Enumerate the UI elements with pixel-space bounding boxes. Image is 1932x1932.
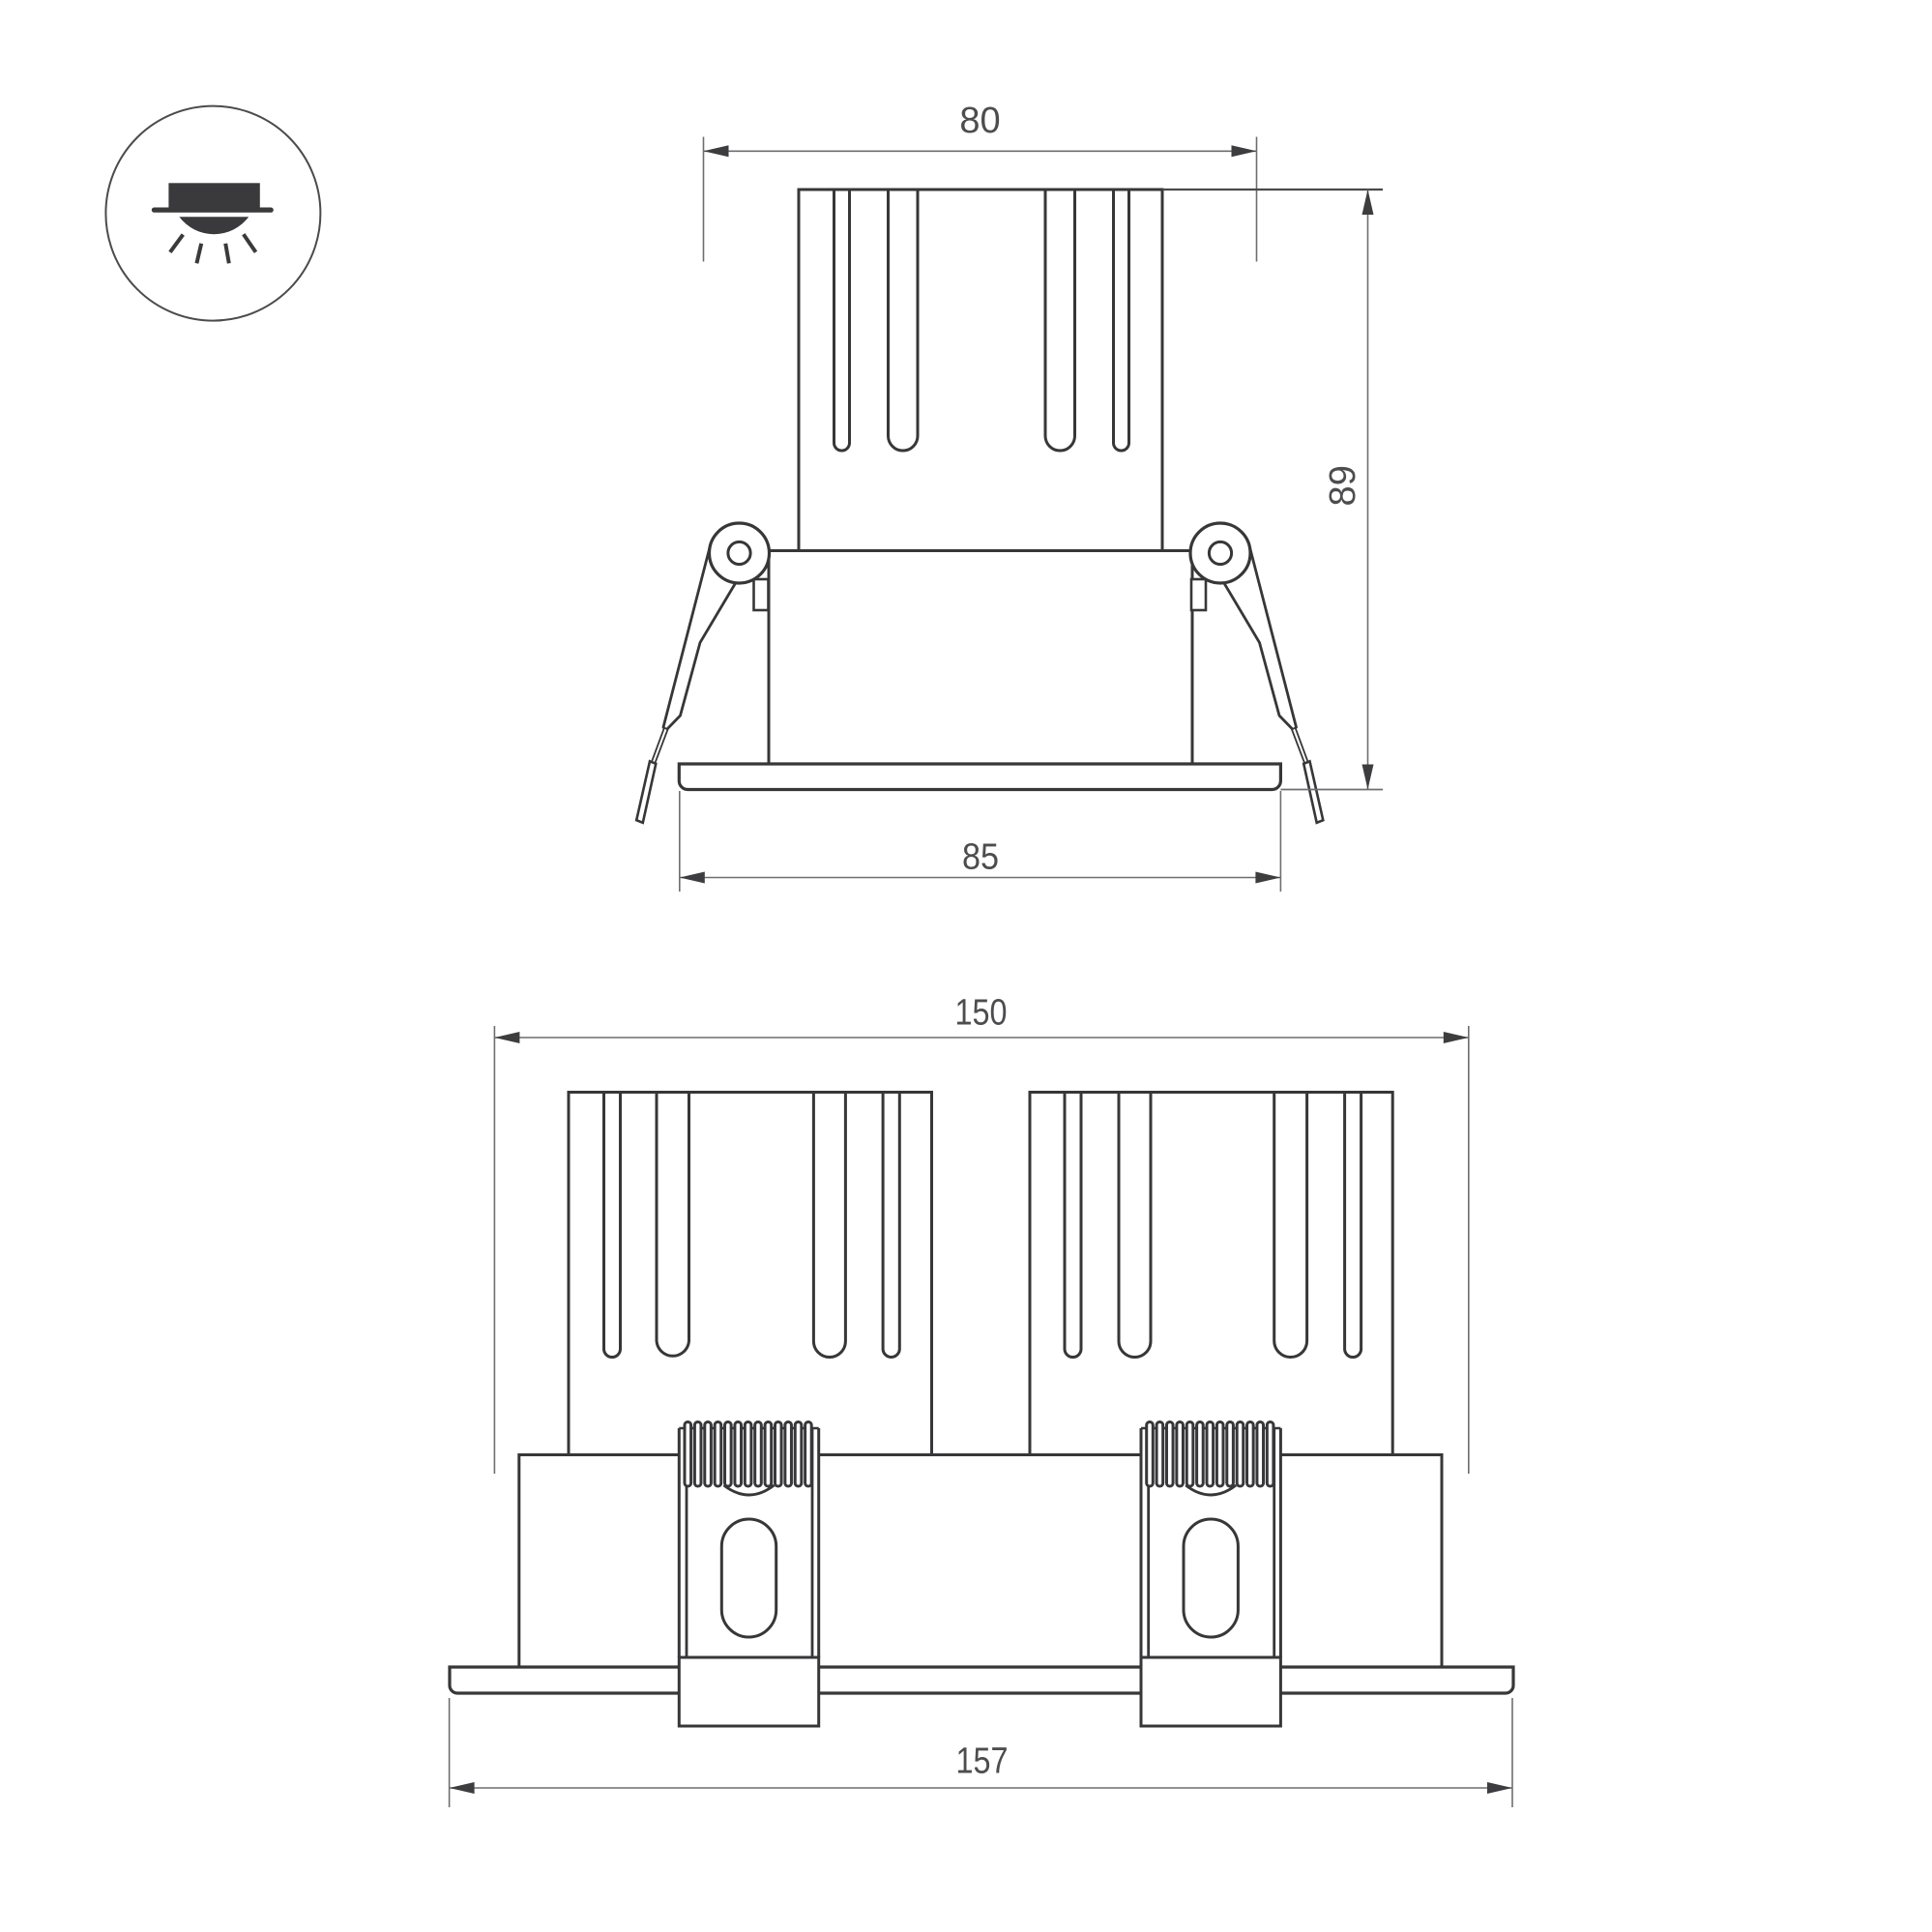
svg-text:89: 89: [1323, 465, 1363, 506]
svg-text:80: 80: [959, 101, 1000, 141]
svg-text:150: 150: [955, 993, 1008, 1034]
svg-text:85: 85: [962, 837, 999, 878]
svg-text:157: 157: [956, 1742, 1009, 1782]
